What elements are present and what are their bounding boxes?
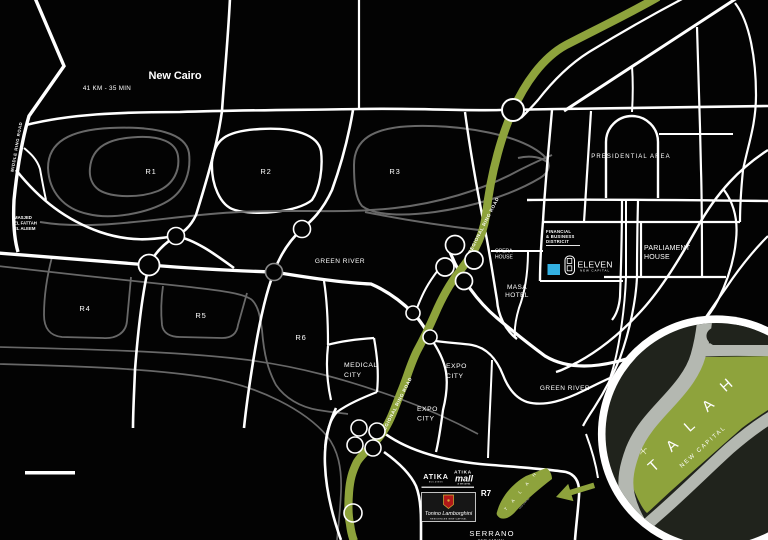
svg-text:HOTEL: HOTEL (505, 292, 529, 299)
svg-text:R5: R5 (195, 311, 206, 320)
svg-text:mall: mall (455, 474, 474, 484)
svg-text:MEDICAL: MEDICAL (344, 362, 378, 369)
svg-text:EL FATTAH: EL FATTAH (14, 221, 37, 226)
svg-text:PARLIAMENT: PARLIAMENT (644, 245, 691, 252)
svg-text:R1: R1 (145, 167, 156, 176)
svg-text:R3: R3 (389, 167, 400, 176)
svg-text:DISTRICIT: DISTRICIT (546, 239, 569, 244)
svg-text:R6: R6 (295, 333, 306, 342)
svg-text:HOUSE: HOUSE (495, 255, 513, 261)
svg-text:Tonino Lamborghini: Tonino Lamborghini (425, 511, 473, 517)
svg-text:EXPO: EXPO (417, 406, 438, 413)
svg-text:SERRANO: SERRANO (469, 529, 514, 538)
svg-text:R2: R2 (260, 167, 271, 176)
svg-text:EXPO: EXPO (446, 363, 467, 370)
svg-text:HOUSE: HOUSE (644, 254, 670, 261)
svg-text:EL ALEEM: EL ALEEM (14, 226, 36, 231)
svg-text:GREEN RIVER: GREEN RIVER (315, 258, 365, 265)
svg-text:GREEN RIVER: GREEN RIVER (540, 385, 590, 392)
svg-text:R7: R7 (481, 489, 492, 498)
svg-text:CITY: CITY (446, 373, 463, 380)
svg-text:41 KM - 35 MIN: 41 KM - 35 MIN (83, 85, 131, 92)
svg-text:MASA: MASA (507, 284, 527, 291)
svg-text:New Cairo: New Cairo (149, 70, 202, 82)
svg-text:NEW CAPITAL: NEW CAPITAL (580, 269, 610, 273)
svg-text:CITY: CITY (417, 416, 434, 423)
svg-text:BUILDINGS: BUILDINGS (429, 482, 443, 484)
svg-text:MASJED: MASJED (14, 215, 32, 220)
svg-text:R4: R4 (79, 304, 90, 313)
svg-text:CITY: CITY (344, 372, 361, 379)
svg-text:RESIDENCES NEW CAPITAL: RESIDENCES NEW CAPITAL (430, 517, 467, 520)
svg-text:ATIKA: ATIKA (423, 472, 448, 481)
svg-text:PRESIDENTIAL AREA: PRESIDENTIAL AREA (591, 154, 671, 160)
